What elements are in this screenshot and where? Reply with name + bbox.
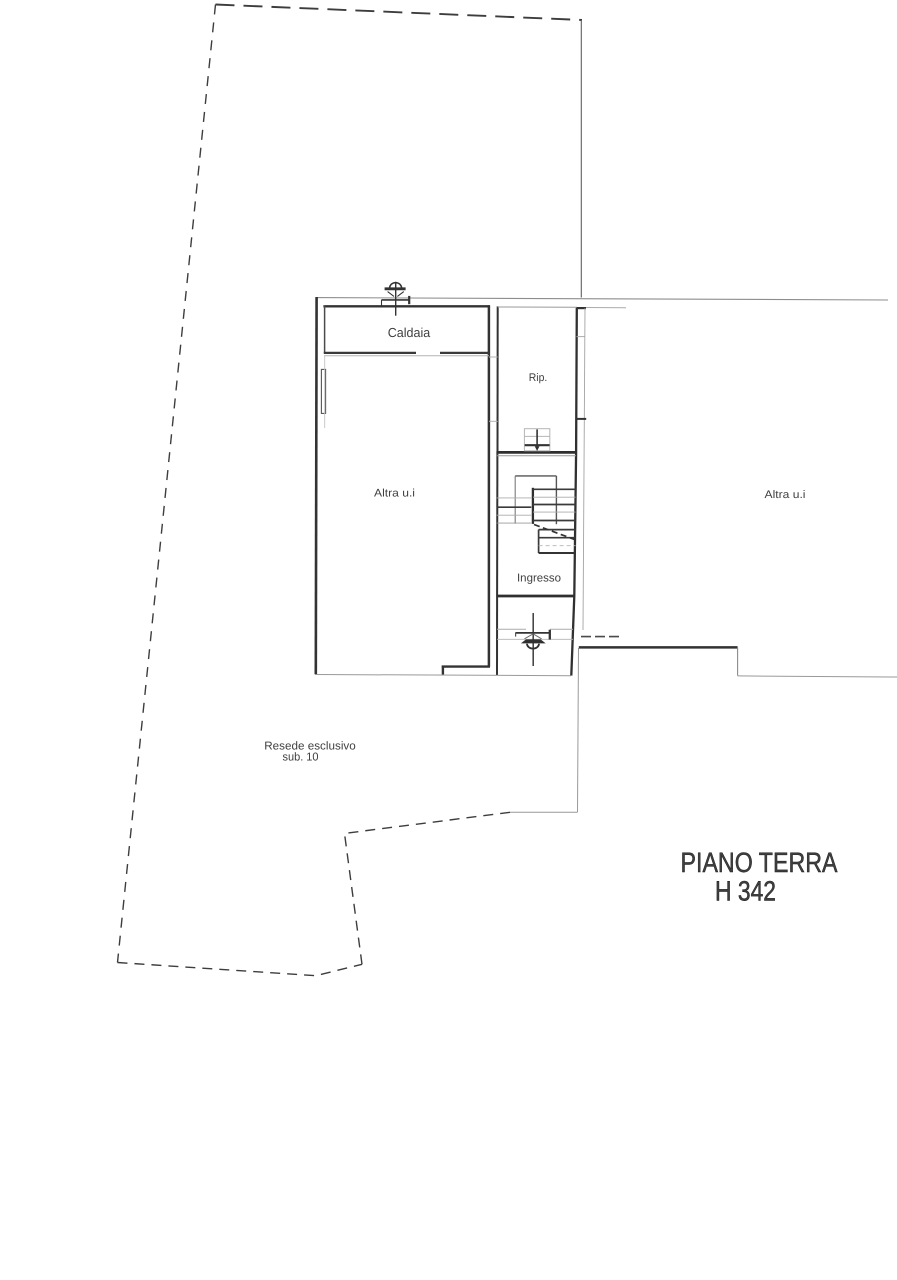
svg-text:H 342: H 342 [715, 876, 776, 907]
svg-text:PIANO TERRA: PIANO TERRA [681, 847, 838, 878]
svg-text:Altra u.i: Altra u.i [765, 489, 806, 501]
svg-text:Altra u.i: Altra u.i [374, 488, 415, 500]
svg-text:Rip.: Rip. [529, 372, 548, 384]
svg-text:Caldaia: Caldaia [388, 325, 431, 340]
svg-text:sub. 10: sub. 10 [283, 752, 319, 764]
svg-text:Ingresso: Ingresso [517, 573, 561, 585]
